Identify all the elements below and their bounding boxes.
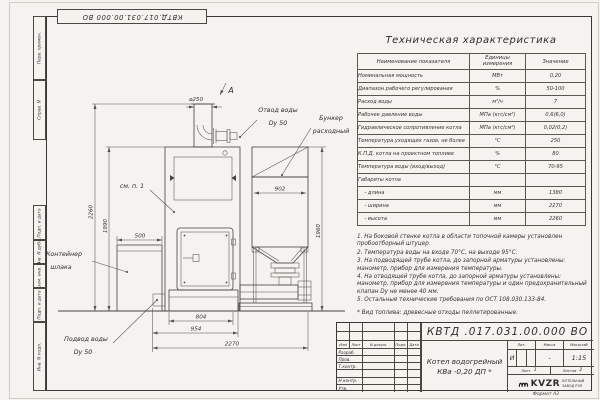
spec-header-units: Единицы измерения	[470, 54, 526, 70]
doc-code-rotated: КВТД.017.031.00.000 ВО	[57, 9, 207, 24]
rev-cell	[350, 323, 363, 332]
spec-cell-value: 50-100	[526, 83, 586, 96]
sheets-number: 2	[579, 368, 582, 373]
drawing-sheet: Перв. примен. Справ. N Подп. и дата Инв.…	[0, 0, 600, 400]
spec-cell-unit: мм	[470, 213, 526, 226]
frame-label: Подп. и дата	[37, 290, 42, 319]
spec-header-name: Наименование показателя	[358, 54, 470, 70]
rev-cell	[350, 332, 363, 341]
spec-cell-unit: м³/ч	[470, 96, 526, 109]
spec-cell-unit: мм	[470, 187, 526, 200]
role-cell	[408, 356, 421, 363]
role-cell	[408, 385, 421, 392]
spec-row: Номинальная мощность МВт 0,20	[358, 70, 586, 83]
lit-cell	[527, 350, 536, 367]
brand-subtitle: КОТЕЛЬНЫЙ ЗАВОД РЭП	[562, 379, 584, 388]
spec-cell-unit: МПа (кгс/см²)	[470, 109, 526, 122]
spec-cell-value: 2270	[526, 200, 586, 213]
spec-cell-value: 0,20	[526, 70, 586, 83]
spec-header-value: Значение	[526, 54, 586, 70]
rev-cell	[395, 323, 408, 332]
brand-name: KVZR	[531, 379, 560, 389]
lit-header: Лит.	[508, 341, 536, 350]
spec-cell-value: 250	[526, 135, 586, 148]
spec-cell-unit	[470, 174, 526, 187]
spec-table: Наименование показателя Единицы измерени…	[357, 53, 586, 226]
spec-cell-unit: °С	[470, 135, 526, 148]
col-data: Дата	[408, 341, 421, 349]
frame-cell-vzam-inv: Взам. инв. N	[33, 264, 46, 288]
spec-cell-name: Температура воды (вход/выход)	[358, 161, 470, 174]
spec-row: Гидравлическое сопротивление котла МПа (…	[358, 122, 586, 135]
rev-cell	[337, 323, 350, 332]
frame-label: Справ. N	[37, 100, 42, 120]
sheet-cell: Лист 1	[508, 367, 551, 375]
spec-cell-name: Температура уходящих газов, не более	[358, 135, 470, 148]
spec-table-title: Техническая характеристика	[357, 35, 585, 46]
spec-cell-name: Гидравлическое сопротивление котла	[358, 122, 470, 135]
role-razrab: Разраб.	[337, 349, 363, 356]
role-utv: Утв.	[337, 385, 363, 392]
rev-cell	[395, 332, 408, 341]
scale-value: 1:15	[564, 350, 594, 367]
frame-cell-inv-podl: Инв. N подл.	[33, 322, 46, 391]
frame-cell-inv-dubl: Инв. N дубл.	[33, 240, 46, 264]
rev-cell	[363, 332, 395, 341]
sheet-label: Лист	[521, 369, 530, 373]
title-block-doc-code: КВТД .017.031.00.000 ВО	[421, 323, 593, 341]
note-2: 2. Температура воды на входе 70°С, на вы…	[357, 250, 587, 257]
role-nkontr: Н.контр.	[337, 378, 363, 385]
role-cell	[408, 378, 421, 385]
spec-row: - высота мм 2260	[358, 213, 586, 226]
spec-cell-unit: %	[470, 83, 526, 96]
rev-cell	[337, 332, 350, 341]
spec-cell-name: Габариты котла	[358, 174, 470, 187]
col-podp: Подп.	[395, 341, 408, 349]
spec-cell-name: К.П.Д. котла на проектном топливе	[358, 148, 470, 161]
spec-row: Температура воды (вход/выход) °С 70-95	[358, 161, 586, 174]
role-cell	[395, 363, 408, 370]
product-name: Котел водогрейный КВа -0,20 ДП *	[421, 341, 507, 392]
sheets-cell: Листов 2	[551, 367, 594, 375]
spec-cell-unit: %	[470, 148, 526, 161]
role-cell	[363, 349, 395, 356]
role-cell	[363, 370, 395, 377]
product-name-line2: КВа -0,20 ДП *	[437, 367, 492, 377]
note-4: 4. На отводящей трубе котла, до запорной…	[357, 274, 587, 296]
role-cell	[363, 363, 395, 370]
spec-row: Рабочее давление воды МПа (кгс/см²) 0,6(…	[358, 109, 586, 122]
spec-cell-unit: МПа (кгс/см²)	[470, 122, 526, 135]
role-tkontr: Т.контр.	[337, 363, 363, 370]
spec-cell-value: 80	[526, 148, 586, 161]
spec-cell-name: Расход воды	[358, 96, 470, 109]
spec-row: Температура уходящих газов, не более °С …	[358, 135, 586, 148]
spec-row: - длина мм 1380	[358, 187, 586, 200]
spec-cell-value: 0,02(0,2)	[526, 122, 586, 135]
role-cell	[408, 363, 421, 370]
brand-subtitle-line1: КОТЕЛЬНЫЙ	[562, 379, 584, 383]
fuel-type-note: * Вид топлива: древесные отходы пеллетир…	[357, 310, 587, 317]
frame-label: Инв. N подл.	[37, 342, 42, 370]
mass-value: -	[536, 350, 564, 367]
spec-cell-unit: мм	[470, 200, 526, 213]
spec-cell-unit: °С	[470, 161, 526, 174]
spec-cell-name: Диапазон рабочего регулирования	[358, 83, 470, 96]
sheets-label: Листов	[563, 369, 577, 373]
spec-table-body: Номинальная мощность МВт 0,20 Диапазон р…	[358, 70, 586, 226]
frame-label: Перв. примен.	[37, 32, 42, 64]
technical-notes: 1. На боковой стенке котла в области топ…	[357, 234, 587, 318]
frame-label: Подп. и дата	[37, 208, 42, 237]
spec-cell-value: 0,6(6,0)	[526, 109, 586, 122]
company-logo-cell: KVZR КОТЕЛЬНЫЙ ЗАВОД РЭП	[508, 375, 594, 392]
role-cell	[395, 378, 408, 385]
role-cell	[408, 370, 421, 377]
mass-header: Масса	[536, 341, 564, 350]
col-list: Лист	[350, 341, 363, 349]
spec-cell-name: - ширина	[358, 200, 470, 213]
col-ndokum: N докум.	[363, 341, 395, 349]
product-name-line1: Котел водогрейный	[427, 357, 502, 367]
spec-cell-name: Номинальная мощность	[358, 70, 470, 83]
spec-cell-value: 1380	[526, 187, 586, 200]
role-prov: Пров.	[337, 356, 363, 363]
frame-cell-podp-data-1: Подп. и дата	[33, 205, 46, 240]
sheet-number: 1	[534, 368, 537, 373]
role-cell	[363, 356, 395, 363]
format-label: Формат А3	[500, 392, 592, 397]
rev-cell	[363, 323, 395, 332]
role-cell	[395, 370, 408, 377]
brand-subtitle-line2: ЗАВОД РЭП	[562, 384, 584, 388]
note-1: 1. На боковой стенке котла в области топ…	[357, 234, 587, 249]
spec-cell-name: Рабочее давление воды	[358, 109, 470, 122]
role-cell	[363, 378, 395, 385]
title-block-right: Лит. Масса Масштаб И - 1:15 Лист 1 Листо…	[507, 341, 593, 392]
role-cell	[395, 356, 408, 363]
role-empty	[337, 370, 363, 377]
note-5: 5. Остальные технические требования по О…	[357, 297, 587, 304]
spec-cell-unit: МВт	[470, 70, 526, 83]
spec-row: Расход воды м³/ч 7	[358, 96, 586, 109]
lit-value: И	[508, 350, 517, 367]
role-cell	[395, 349, 408, 356]
frame-cell-perv-primen: Перв. примен.	[33, 16, 46, 80]
doc-code-text: КВТД.017.031.00.000 ВО	[82, 13, 183, 21]
role-cell	[408, 349, 421, 356]
lit-cell	[517, 350, 526, 367]
col-izm: Изм	[337, 341, 350, 349]
role-cell	[363, 385, 395, 392]
spec-row: Диапазон рабочего регулирования % 50-100	[358, 83, 586, 96]
spring-icon	[518, 378, 529, 389]
title-block: Изм Лист N докум. Подп. Дата Разраб. Про…	[336, 322, 592, 391]
spec-cell-name: - длина	[358, 187, 470, 200]
rev-cell	[408, 332, 421, 341]
frame-cell-podp-data-2: Подп. и дата	[33, 288, 46, 322]
spec-cell-name: - высота	[358, 213, 470, 226]
note-3: 3. На подводящей трубе котла, до запорно…	[357, 258, 587, 273]
scale-header: Масштаб	[564, 341, 594, 350]
spec-row: К.П.Д. котла на проектном топливе % 80	[358, 148, 586, 161]
spec-cell-value: 70-95	[526, 161, 586, 174]
spec-cell-value	[526, 174, 586, 187]
spec-row: Габариты котла	[358, 174, 586, 187]
frame-label: Взам. инв. N	[37, 262, 42, 290]
rev-cell	[408, 323, 421, 332]
spec-header-units-text: Единицы измерения	[481, 56, 515, 68]
spec-cell-value: 7	[526, 96, 586, 109]
spec-cell-value: 2260	[526, 213, 586, 226]
frame-cell-sprav-n: Справ. N	[33, 80, 46, 140]
role-cell	[395, 385, 408, 392]
spec-row: - ширина мм 2270	[358, 200, 586, 213]
